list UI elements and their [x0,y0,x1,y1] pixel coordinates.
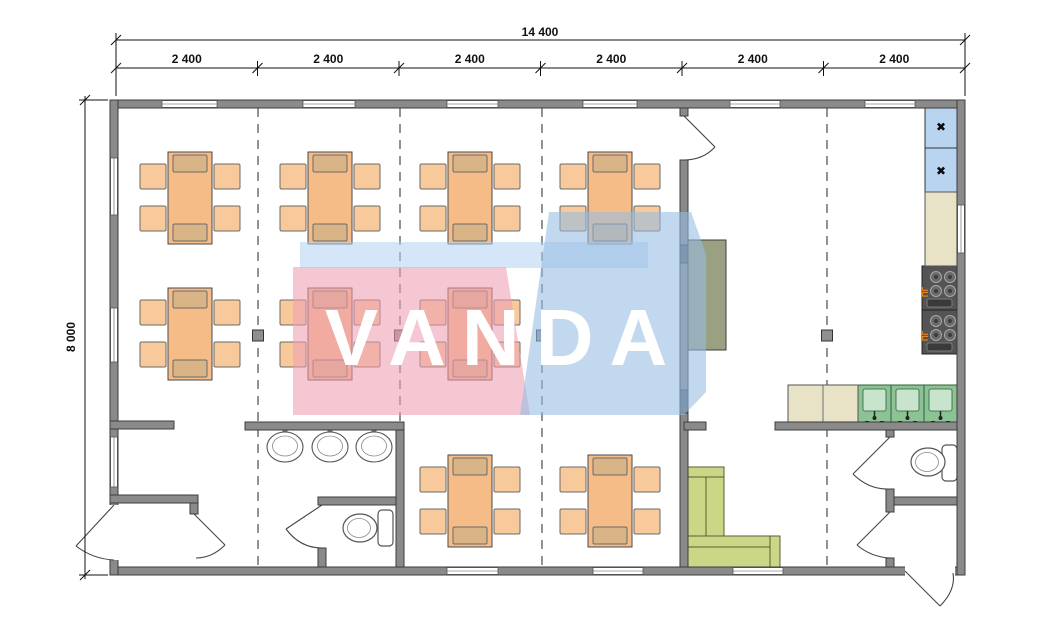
door [76,505,114,546]
chair [420,164,446,189]
washbasin [312,428,348,462]
window [447,568,498,575]
chair [354,206,380,231]
burner-icon [948,333,952,337]
dining-table-group [140,288,240,380]
kitchen-sink [858,385,891,424]
wall [110,495,198,503]
chair-tucked [453,155,487,172]
door-swing [857,545,890,558]
dimension-label-height: 8 000 [64,322,78,352]
window [447,101,498,108]
door-opening [905,566,955,576]
refrigerator: ✖ [925,148,957,192]
dimension-label-module: 2 400 [738,52,768,66]
chair [560,164,586,189]
door-swing [853,474,890,489]
dining-table-group [560,455,660,547]
dining-table-group [420,455,520,547]
washbasin-inner [318,436,343,456]
door-swing [940,573,953,606]
wall [957,100,965,575]
oven-door [927,343,952,351]
toilet-bowl-inner [348,519,371,538]
window [733,568,783,575]
wall [886,489,894,512]
wall [886,430,894,437]
chair [494,164,520,189]
kitchen-sink [891,385,924,424]
dining-table-group [140,152,240,244]
wall [110,100,965,108]
kitchen-counter [925,192,957,266]
wall [245,422,404,430]
floor-plan: ✖✖ПГПГ [0,0,1047,629]
wall [680,108,688,116]
oven-door [927,299,952,307]
door-swing [684,147,715,160]
wall [110,567,965,575]
window [593,568,643,575]
floor-plan-canvas: ✖✖ПГПГ [0,0,1047,629]
wall [894,497,957,505]
dimension-left: 8 000 [64,95,108,580]
window [111,158,118,215]
chair-tucked [173,155,207,172]
watermark: VANDA [293,212,706,415]
dimension-top-modules: 2 4002 4002 4002 4002 4002 400 [111,52,970,76]
chair [140,206,166,231]
door [853,437,890,474]
chair [140,300,166,325]
chair [634,164,660,189]
chair [354,164,380,189]
chair [214,300,240,325]
stove: ПГ [921,310,957,354]
chair [494,467,520,492]
module-axis-marker [253,330,264,341]
door [857,512,890,545]
door [194,514,225,545]
watermark-text: VANDA [325,293,684,382]
burner-icon [948,275,952,279]
dimension-label-total-width: 14 400 [522,25,559,39]
stove: ПГ [921,266,957,310]
dimension-label-module: 2 400 [879,52,909,66]
sofa-seat [688,536,780,568]
wall [396,430,404,567]
window [303,101,355,108]
burner-icon [948,289,952,293]
window [865,101,915,108]
chair-tucked [173,360,207,377]
dimension-label-module: 2 400 [455,52,485,66]
stove-label: ПГ [921,286,930,297]
burner-icon [934,275,938,279]
door-swing [76,546,114,560]
chair [560,509,586,534]
wall [775,422,957,430]
dimension-label-module: 2 400 [172,52,202,66]
chair-tucked [453,224,487,241]
sink-basin [896,389,919,411]
chair [214,342,240,367]
chair [420,467,446,492]
chair [494,509,520,534]
fridge-icon: ✖ [936,120,946,134]
toilet-bowl-inner [916,453,939,472]
refrigerator: ✖ [925,104,957,148]
chair [214,164,240,189]
dining-table-group [420,152,520,244]
burner-icon [948,319,952,323]
chair-tucked [313,155,347,172]
wall [318,548,326,567]
toilet [343,510,393,546]
chair [214,206,240,231]
door-swing [286,529,322,548]
chair-tucked [593,458,627,475]
wall [886,558,894,567]
door [286,505,322,529]
door [905,571,940,606]
chair [280,206,306,231]
burner-icon [934,333,938,337]
faucet-icon [873,416,877,420]
window [111,437,118,487]
chair [280,164,306,189]
stove-label: ПГ [921,330,930,341]
chair-tucked [453,527,487,544]
chair [140,164,166,189]
kitchen-sink [924,385,957,424]
faucet-icon [939,416,943,420]
window [111,308,118,362]
fridge-icon: ✖ [936,164,946,178]
door-swing [196,545,225,558]
washbasin [267,428,303,462]
module-axis-marker [822,330,833,341]
dimension-top-total: 14 400 [111,25,970,96]
washbasin [356,428,392,462]
wall [318,497,396,505]
chair-tucked [313,224,347,241]
washbasin-inner [273,436,298,456]
chair [634,467,660,492]
door [684,116,715,147]
window [730,101,780,108]
burner-icon [934,289,938,293]
dining-table-group [280,152,380,244]
chair-tucked [453,458,487,475]
burner-icon [934,319,938,323]
chair-tucked [173,291,207,308]
washbasin-inner [362,436,387,456]
window [162,101,217,108]
faucet-icon [906,416,910,420]
toilet [911,445,957,481]
window [958,205,965,253]
chair-tucked [593,155,627,172]
chair [140,342,166,367]
wall [190,503,198,514]
chair [560,467,586,492]
chair [494,206,520,231]
sofa [688,467,780,568]
chair [420,509,446,534]
wall [684,422,706,430]
door-opening [109,505,119,560]
sink-basin [863,389,886,411]
chair-tucked [173,224,207,241]
window [583,101,637,108]
chair [634,509,660,534]
chair-tucked [593,527,627,544]
wall [110,421,174,429]
dimension-label-module: 2 400 [313,52,343,66]
dimension-label-module: 2 400 [596,52,626,66]
chair [420,206,446,231]
sink-basin [929,389,952,411]
toilet-tank [378,510,393,546]
